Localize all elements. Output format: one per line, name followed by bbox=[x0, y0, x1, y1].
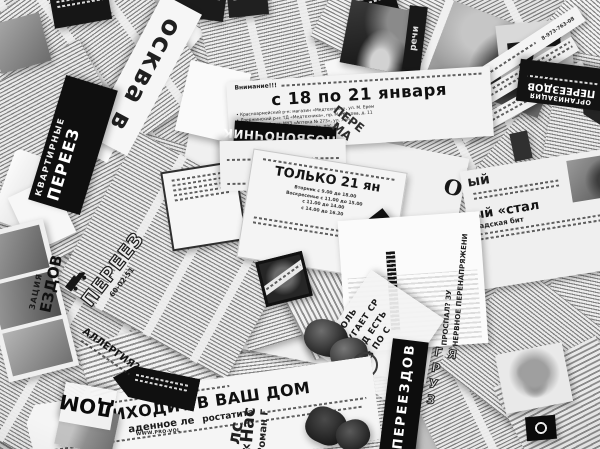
dom-label: ДОМ bbox=[58, 389, 116, 422]
text-line-placeholder bbox=[266, 264, 301, 290]
caption-ribbon bbox=[261, 259, 307, 296]
newspaper-collage: речи 8-973-763-08 ОРГАНИЗАЦИЯ ПЕРЕЕЗДОВ … bbox=[0, 0, 600, 449]
website-label: WWW.PRO-VOL bbox=[136, 429, 168, 437]
face-sketch-photo bbox=[495, 342, 573, 414]
article-photo bbox=[566, 153, 600, 203]
black-square-logo bbox=[525, 415, 557, 442]
photo-fragment bbox=[2, 318, 73, 376]
pereezdov-label: ПЕРЕЕЗДОВ bbox=[390, 342, 418, 449]
ls-label: лс bbox=[224, 420, 248, 446]
